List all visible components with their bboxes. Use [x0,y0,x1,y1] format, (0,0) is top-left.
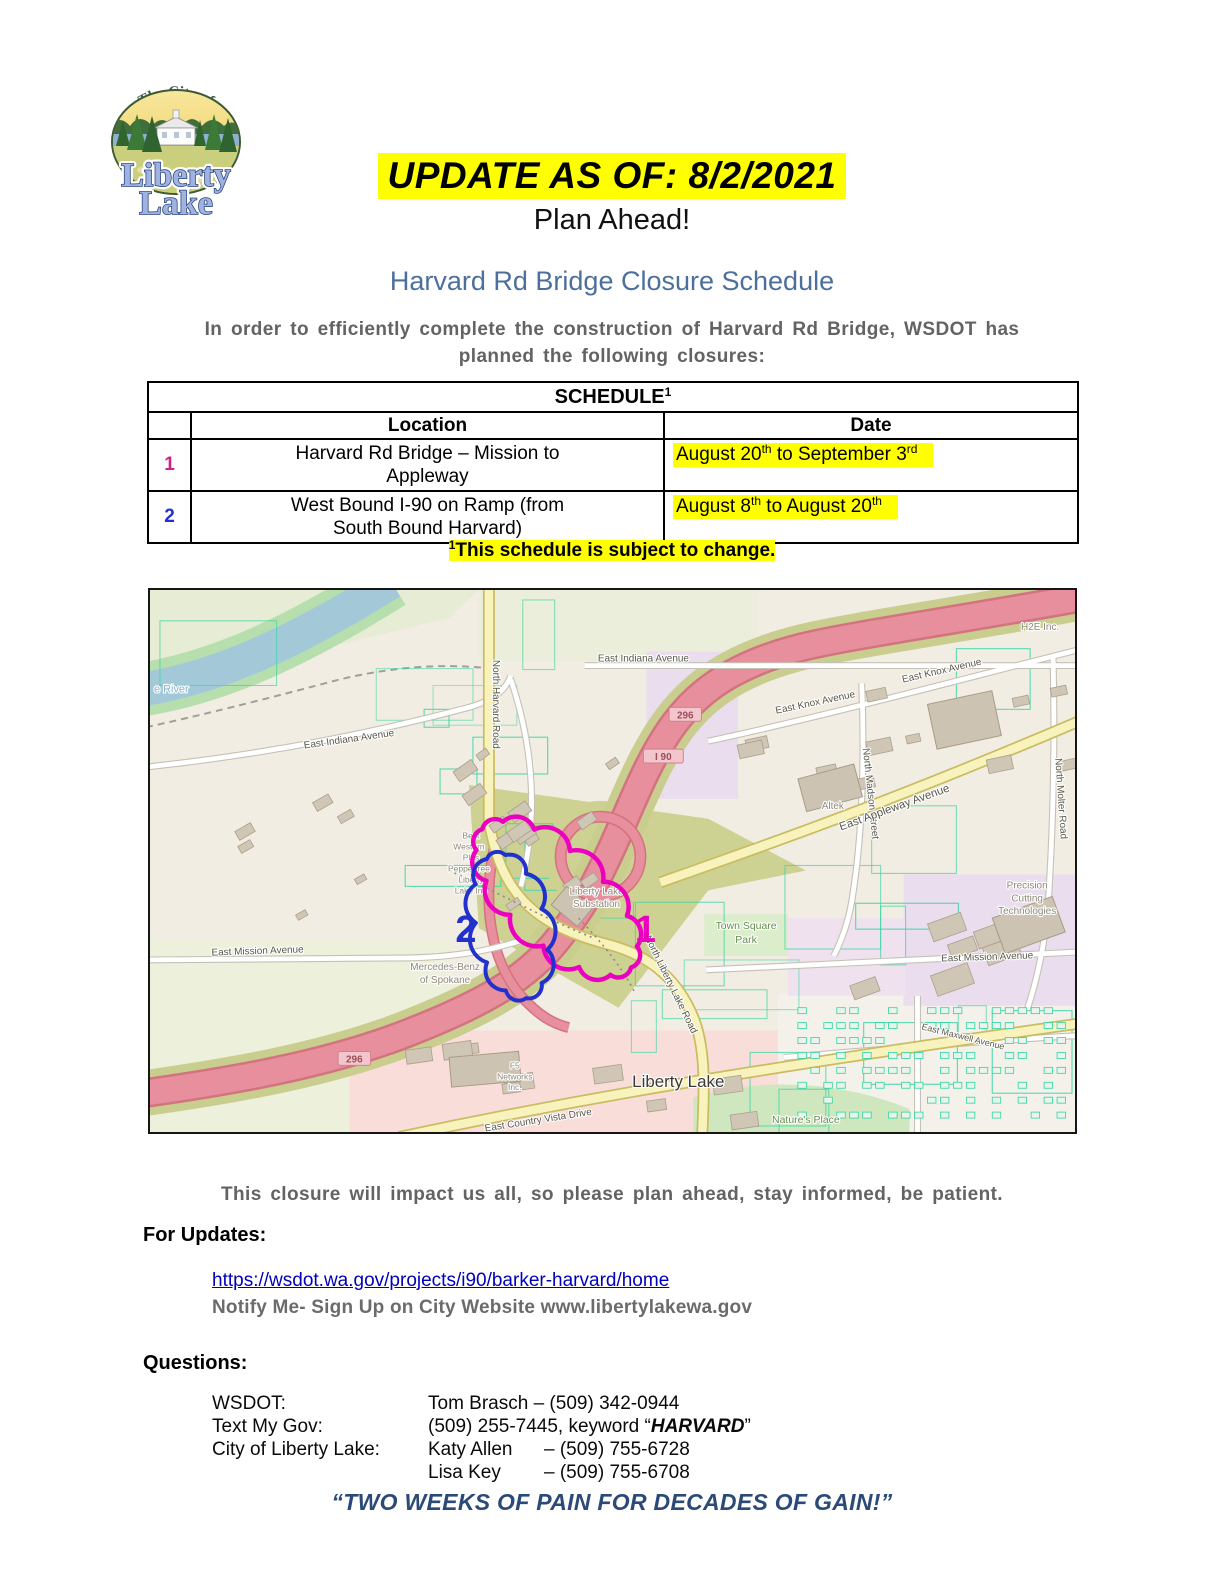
contact-value: Tom Brasch – (509) 342-0944 [428,1393,679,1414]
svg-text:296: 296 [346,1054,363,1065]
contact-row-lisa-key: Lisa Key– (509) 755-6708 [212,1461,751,1484]
building [593,1064,624,1084]
lot [1018,1008,1026,1014]
map-label: Liberty Lake [632,1072,724,1091]
lot [940,1052,948,1058]
lot [915,1112,923,1118]
lot [824,1082,832,1088]
map-image: e RiverEast Indiana AvenueEast Indiana A… [150,590,1075,1132]
intro-paragraph: In order to efficiently complete the con… [0,316,1224,370]
lot [1044,1067,1052,1073]
questions-heading: Questions: [143,1352,247,1375]
contact-label: Text My Gov: [212,1415,428,1438]
lot [876,1023,884,1029]
intro-line-1: In order to efficiently complete the con… [0,316,1224,343]
lot [889,1067,897,1073]
impact-line: This closure will impact us all, so plea… [0,1184,1224,1206]
closure-location: Harvard Rd Bridge – Mission toAppleway [191,439,664,491]
lot [798,1038,806,1044]
route-shield: 296 [669,707,701,721]
lot [863,1112,871,1118]
footer-quote: “TWO WEEKS OF PAIN FOR DECADES OF GAIN!” [0,1489,1224,1516]
lot [915,1082,923,1088]
update-banner-row: UPDATE AS OF: 8/2/2021 [0,153,1224,199]
lot [966,1067,974,1073]
lot [927,1008,935,1014]
lot [837,1052,845,1058]
lot [1018,1097,1026,1103]
lot [940,1082,948,1088]
contact-value: – (509) 755-6728 [544,1439,690,1460]
lot [811,1038,819,1044]
lot [798,1082,806,1088]
lot [1057,1038,1065,1044]
lot [902,1112,910,1118]
closure-number-1: 1 [635,909,656,951]
contact-label: WSDOT: [212,1392,428,1415]
lot [1057,1067,1065,1073]
contact-name: Lisa Key [428,1461,544,1484]
lot [1005,1023,1013,1029]
contact-value: – (509) 755-6708 [544,1462,690,1483]
route-shield: I 90 [643,749,683,763]
lot [1057,1023,1065,1029]
lot [940,1067,948,1073]
contact-label: City of Liberty Lake: [212,1438,428,1461]
lot [1018,1082,1026,1088]
update-banner: UPDATE AS OF: 8/2/2021 [378,153,847,199]
map-label: Liberty Lake [569,886,624,897]
lot [889,1112,897,1118]
lot [902,1082,910,1088]
lot [966,1112,974,1118]
lot [811,1052,819,1058]
contact-row-textmygov: Text My Gov:(509) 255-7445, keyword “HAR… [212,1415,751,1438]
schedule-header-row: Location Date [148,412,1078,439]
closure-location: West Bound I-90 on Ramp (fromSouth Bound… [191,491,664,543]
closure-map: e RiverEast Indiana AvenueEast Indiana A… [148,588,1077,1134]
lot [798,1023,806,1029]
lot [915,1052,923,1058]
lot [953,1008,961,1014]
lot [1018,1052,1026,1058]
contact-name: Katy Allen [428,1438,544,1461]
lot [1044,1097,1052,1103]
updates-link-row: https://wsdot.wa.gov/projects/i90/barker… [212,1270,669,1292]
lot [1057,1097,1065,1103]
lot [1005,1038,1013,1044]
lot [824,1097,832,1103]
contact-value: (509) 255-7445, keyword “HARVARD” [428,1416,751,1437]
lot [1018,1038,1026,1044]
schedule-table-title: SCHEDULE1 [148,382,1078,412]
lot [1031,1008,1039,1014]
map-label: North Harvard Road [490,660,501,749]
lot [940,1008,948,1014]
map-label: East Indiana Avenue [598,654,690,665]
plan-ahead-text: Plan Ahead! [0,204,1224,237]
page-title: Harvard Rd Bridge Closure Schedule [0,266,1224,297]
keyword-harvard: HARVARD [651,1416,745,1437]
lot [1057,1112,1065,1118]
building [730,1111,759,1130]
lot [992,1097,1000,1103]
contact-row-katy-allen: City of Liberty Lake:Katy Allen– (509) 7… [212,1438,751,1461]
lot [1005,1052,1013,1058]
map-label: Park [735,935,757,946]
lot [811,1067,819,1073]
lot [992,1008,1000,1014]
closure-date: August 8th to August 20th [664,491,1078,543]
schedule-col-location: Location [191,412,664,439]
lot [837,1023,845,1029]
map-label: Technologies [998,906,1056,917]
map-label: Mercedes-Benz [410,962,480,973]
svg-text:I 90: I 90 [655,752,672,763]
lot [889,1052,897,1058]
lot [850,1008,858,1014]
schedule-row-2: 2 West Bound I-90 on Ramp (fromSouth Bou… [148,491,1078,543]
route-shield: 296 [338,1051,370,1065]
wsdot-project-link[interactable]: https://wsdot.wa.gov/projects/i90/barker… [212,1270,669,1291]
lot [953,1082,961,1088]
closure-number-2: 2 [455,909,476,951]
lot [837,1008,845,1014]
lot [1044,1008,1052,1014]
lot [850,1112,858,1118]
map-label: H2E Inc. [1021,622,1059,633]
lot [902,1067,910,1073]
notify-me-line: Notify Me- Sign Up on City Website www.l… [212,1297,752,1319]
lot [1057,1052,1065,1058]
lot [876,1067,884,1073]
lot [850,1038,858,1044]
map-label: Networks [497,1071,532,1081]
lot [940,1112,948,1118]
lot [1044,1082,1052,1088]
lot [1031,1112,1039,1118]
lot [979,1067,987,1073]
lot [837,1038,845,1044]
lot [837,1067,845,1073]
map-label: Cutting [1011,893,1043,904]
lot [798,1008,806,1014]
row-number: 2 [148,491,191,543]
lot [966,1052,974,1058]
lot [863,1082,871,1088]
map-label: Peppertree [448,863,490,873]
lot [992,1067,1000,1073]
contact-row-wsdot: WSDOT:Tom Brasch – (509) 342-0944 [212,1392,751,1415]
lot [876,1038,884,1044]
lot [940,1097,948,1103]
map-label: Substation [573,899,620,910]
schedule-row-1: 1 Harvard Rd Bridge – Mission toAppleway… [148,439,1078,491]
lot [902,1052,910,1058]
map-label: F5 [510,1060,520,1070]
svg-text:296: 296 [677,710,694,721]
schedule-col-num [148,412,191,439]
lot [876,1082,884,1088]
building [646,1099,666,1112]
lot [992,1023,1000,1029]
map-label: of Spokane [420,975,471,986]
schedule-table: SCHEDULE1 Location Date 1 Harvard Rd Bri… [147,381,1079,544]
lot [824,1023,832,1029]
contacts-list: WSDOT:Tom Brasch – (509) 342-0944 Text M… [212,1392,751,1484]
schedule-col-date: Date [664,412,1078,439]
map-label: Precision [1007,880,1048,891]
row-number: 1 [148,439,191,491]
map-label: Inc. [508,1082,522,1092]
lot [966,1097,974,1103]
lot [889,1023,897,1029]
intro-line-2: planned the following closures: [0,343,1224,370]
lot [863,1052,871,1058]
closure-date: August 20th to September 3rd [664,439,1078,491]
lot [1005,1008,1013,1014]
lot [837,1082,845,1088]
map-label: e River [154,683,189,695]
lot [927,1097,935,1103]
lot [798,1052,806,1058]
lot [1044,1038,1052,1044]
lot [863,1038,871,1044]
lot [979,1023,987,1029]
lot [992,1112,1000,1118]
map-label: Western [453,842,485,852]
for-updates-heading: For Updates: [143,1224,266,1247]
lot [863,1067,871,1073]
lot [966,1082,974,1088]
map-label: Nature's Place [772,1115,840,1126]
map-label: Town Square [716,921,777,932]
flyer-page: The City of Liberty Liberty Lake [0,0,1224,1584]
lot [1044,1023,1052,1029]
schedule-footnote: 1This schedule is subject to change. [147,540,1077,562]
lot [966,1023,974,1029]
lot [889,1008,897,1014]
lot [850,1023,858,1029]
map-label: Altek [822,801,844,812]
lot [953,1052,961,1058]
lot [1005,1067,1013,1073]
